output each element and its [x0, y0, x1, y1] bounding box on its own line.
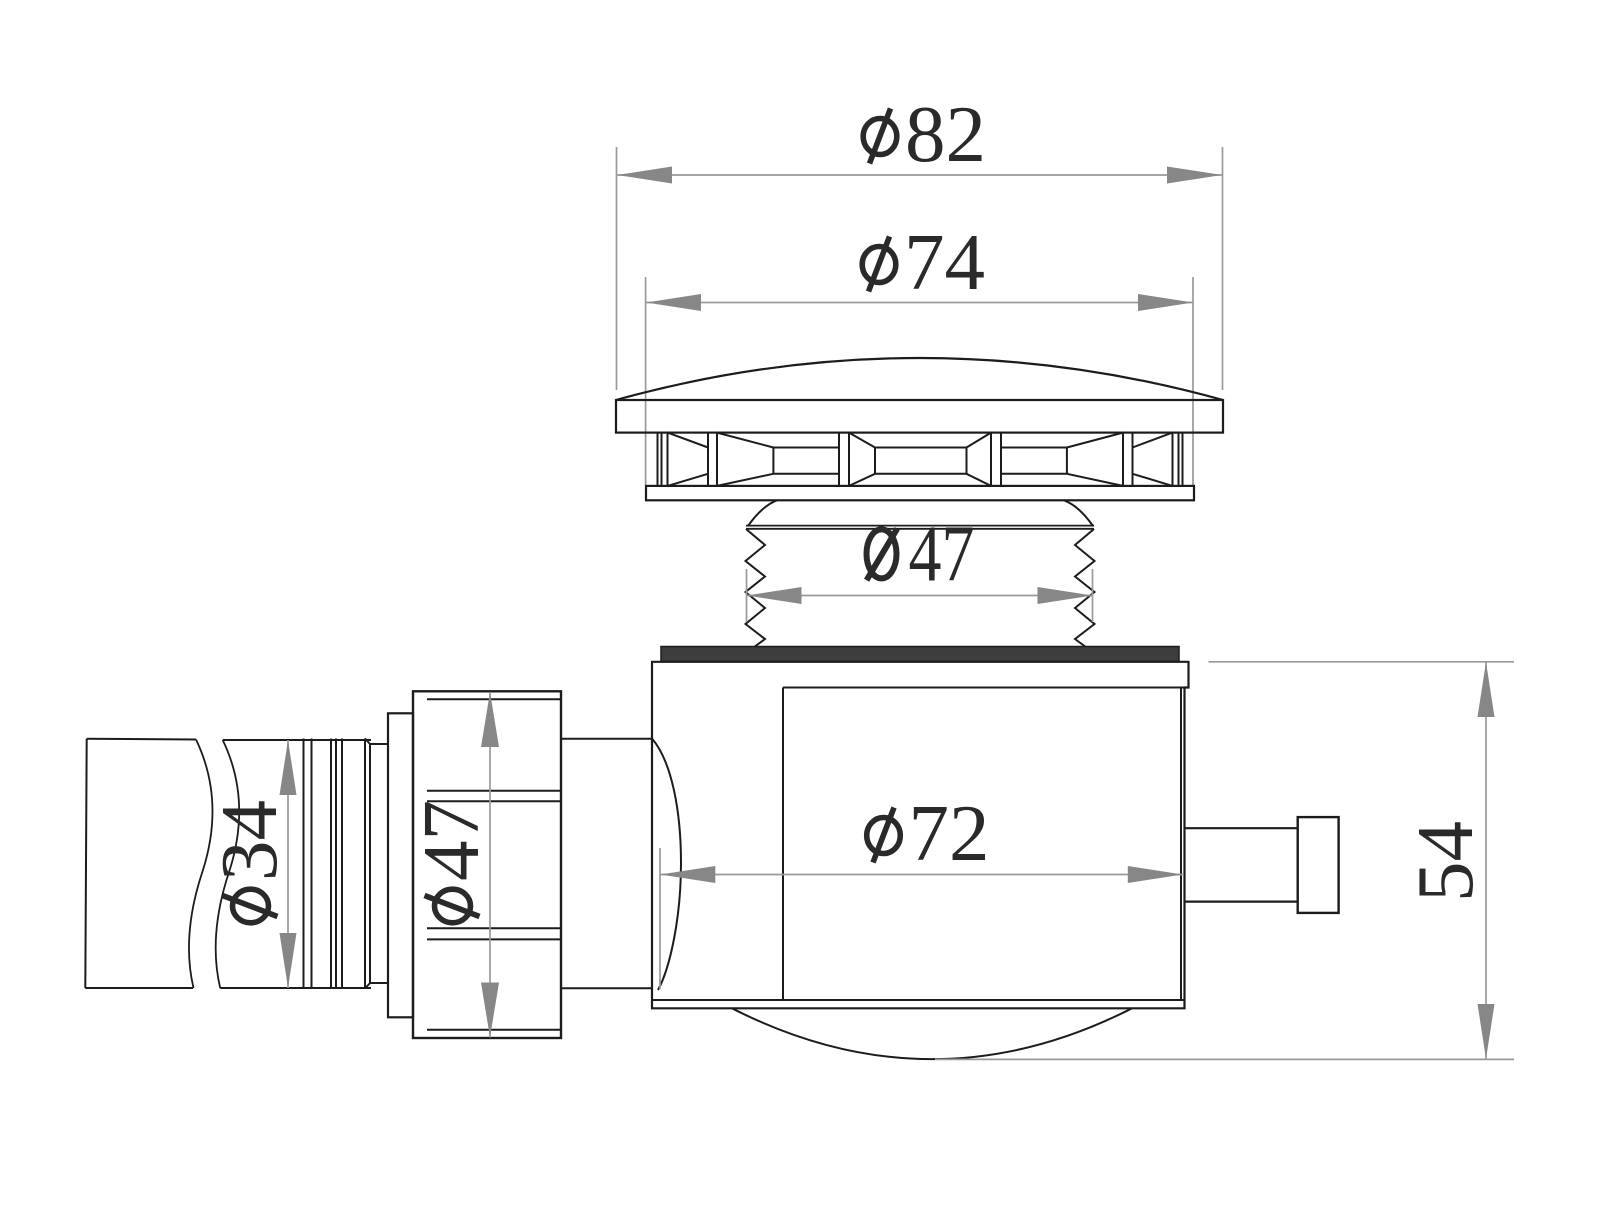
svg-text:74: 74 [904, 217, 985, 307]
svg-text:72: 72 [909, 788, 990, 878]
svg-text:54: 54 [1400, 821, 1490, 902]
svg-text:47: 47 [909, 509, 975, 599]
svg-text:82: 82 [905, 89, 986, 179]
svg-text:34: 34 [204, 800, 294, 881]
svg-text:47: 47 [406, 800, 496, 881]
